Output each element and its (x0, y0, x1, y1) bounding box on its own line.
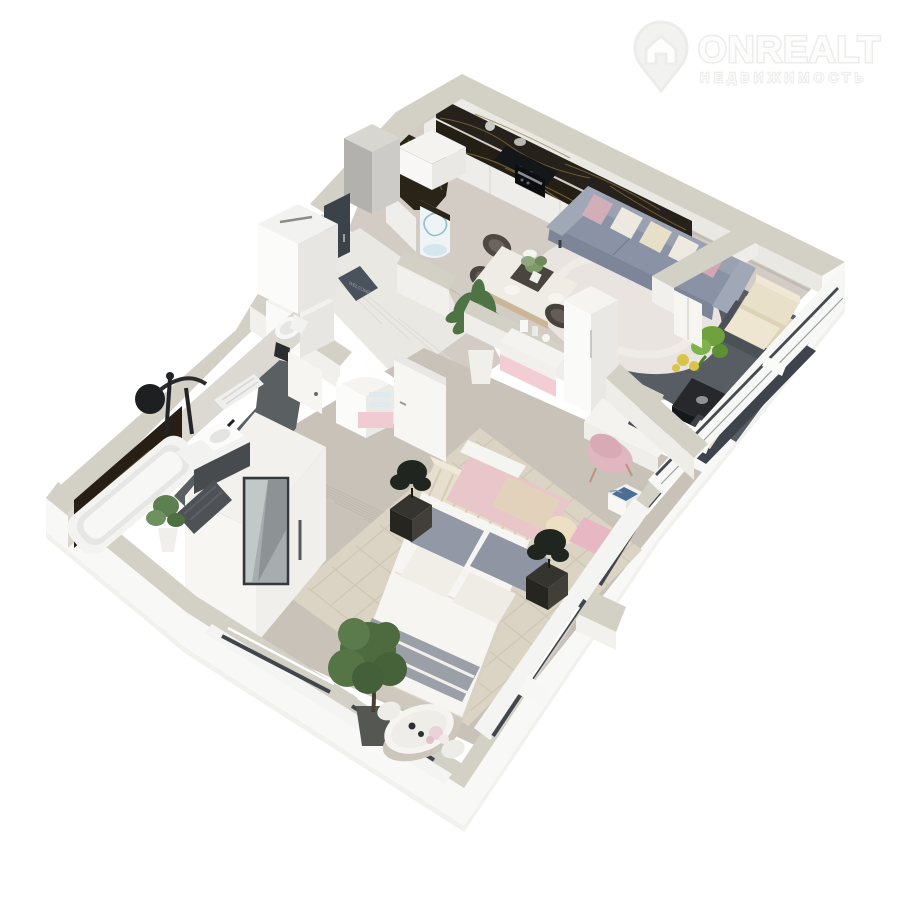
svg-text:НЕДВИЖИМОСТЬ: НЕДВИЖИМОСТЬ (700, 70, 868, 85)
svg-text:ONREALT: ONREALT (698, 29, 881, 70)
